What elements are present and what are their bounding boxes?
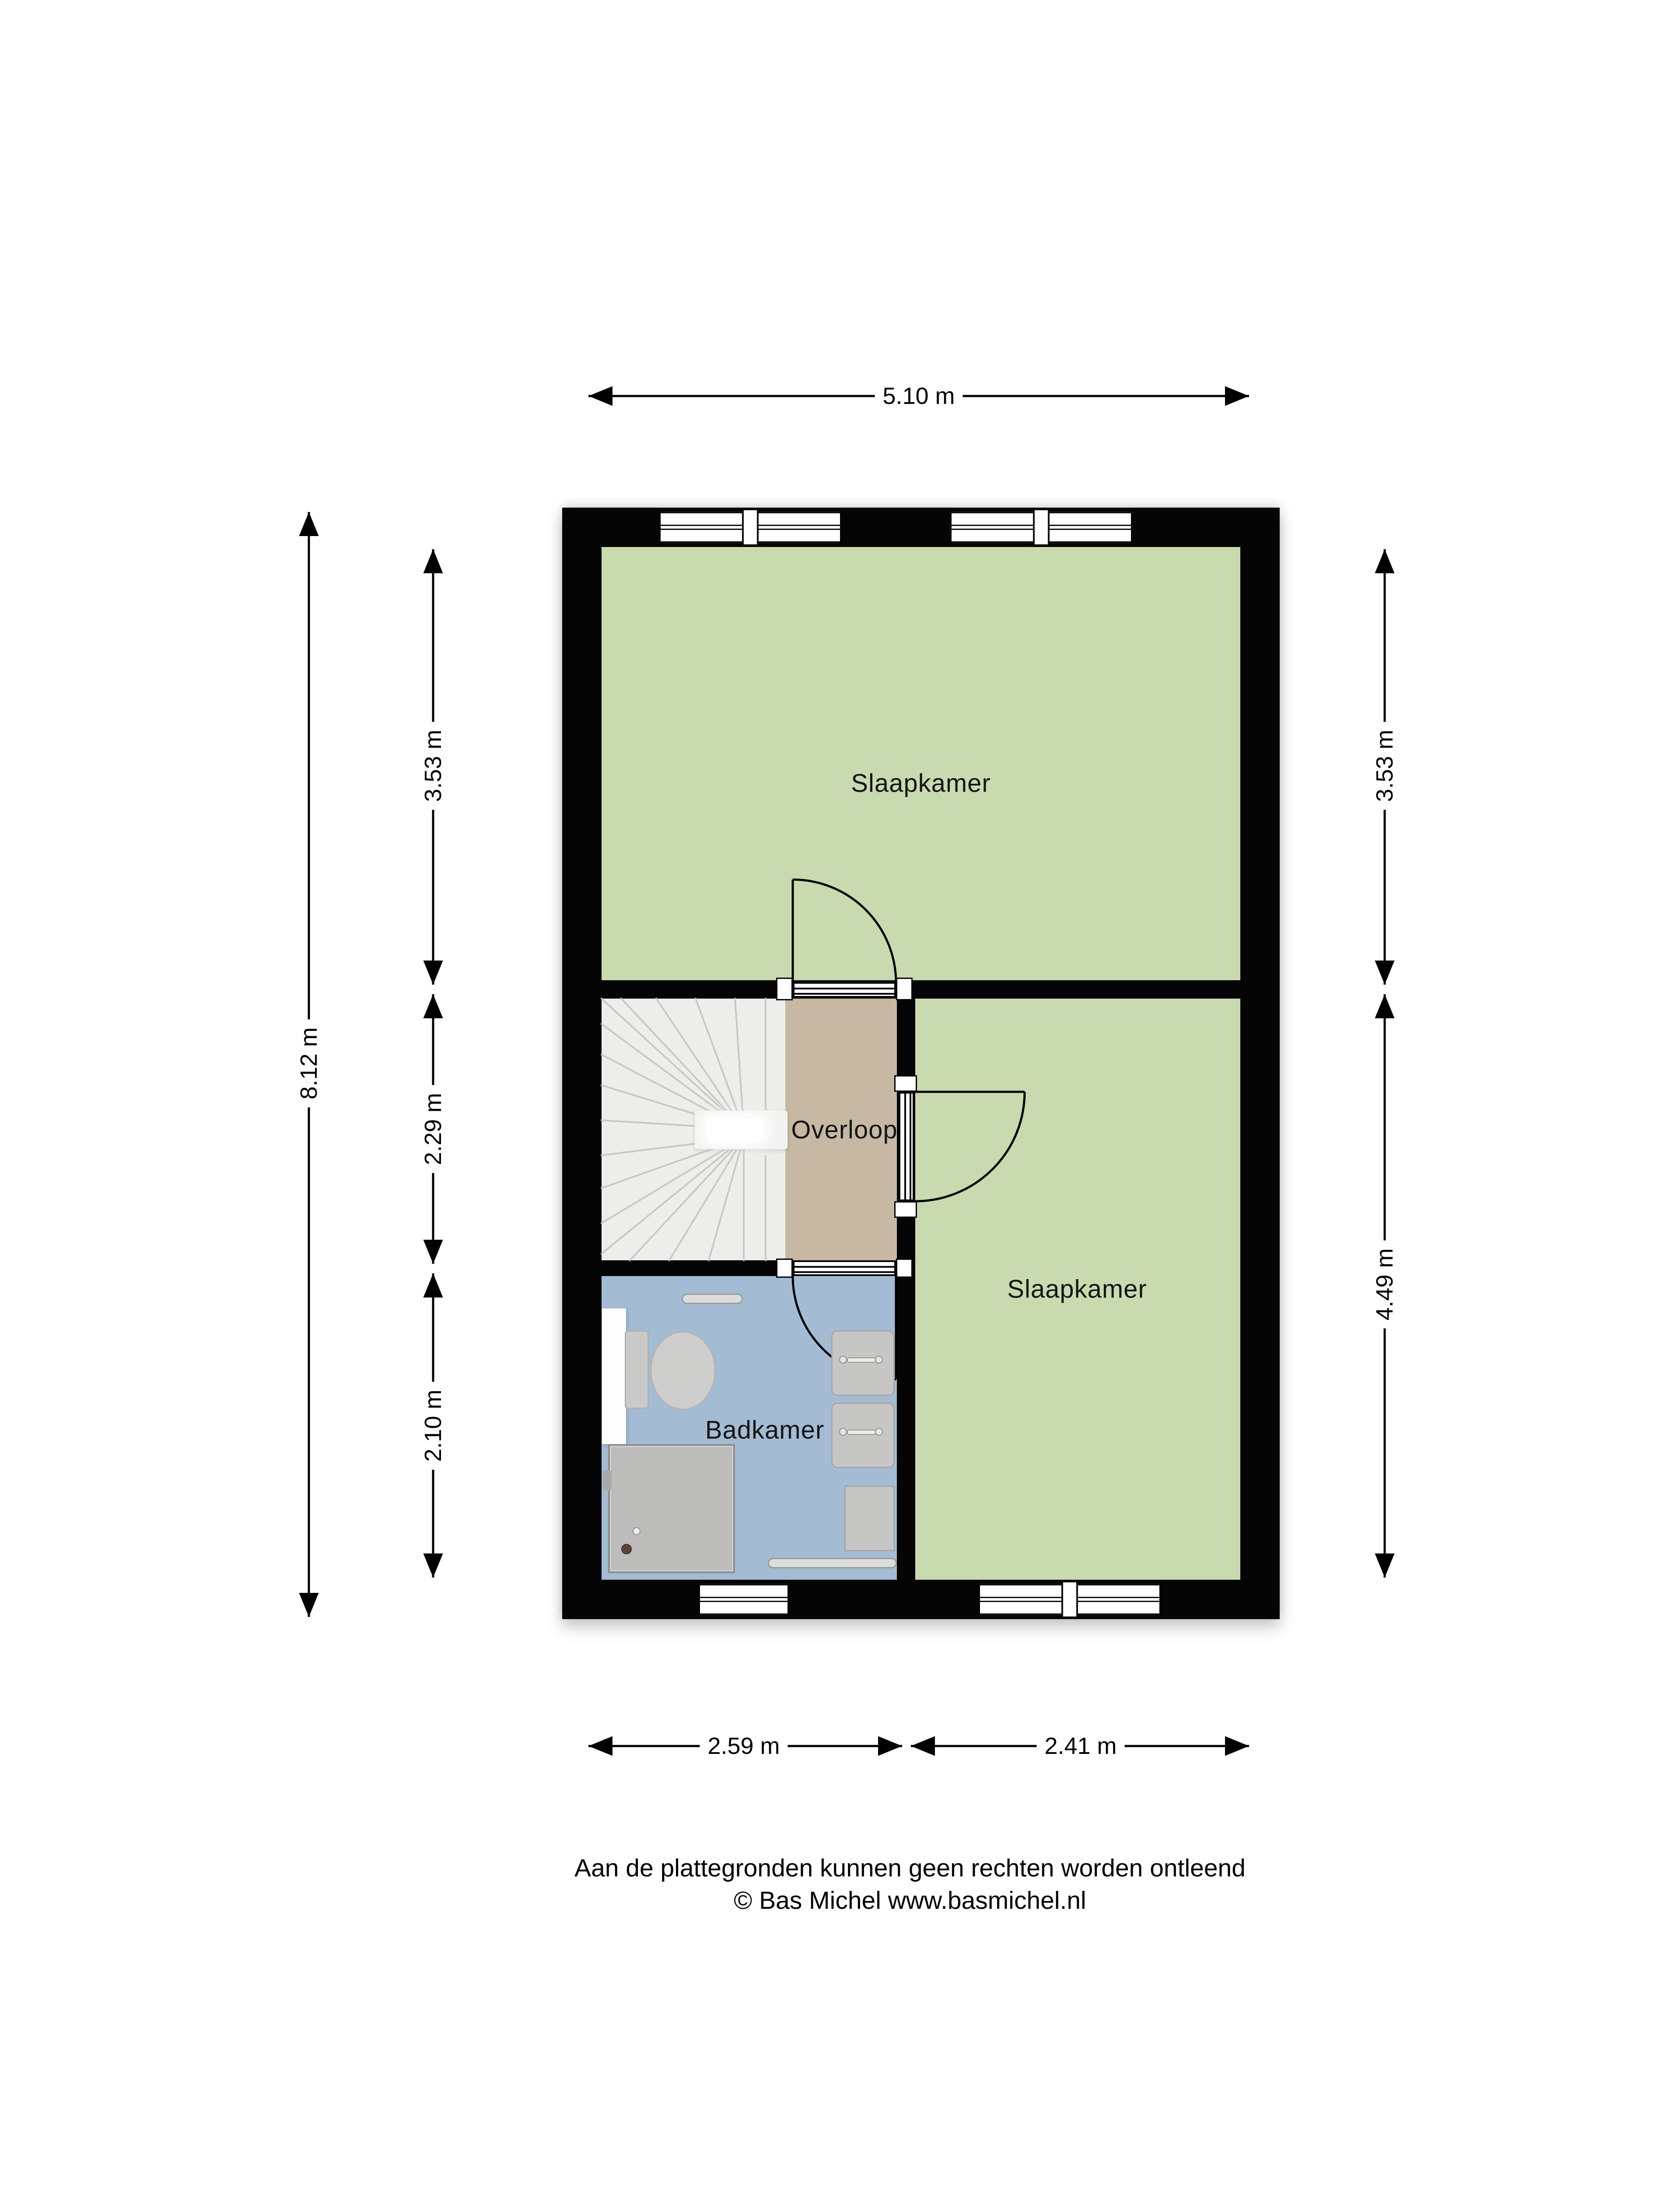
window-divider [1033, 510, 1050, 544]
sink [831, 1330, 895, 1396]
dim-label-left-seg1: 3.53 m [419, 722, 448, 810]
door-jamb [894, 1075, 917, 1092]
footer: Aan de plattegronden kunnen geen rechten… [490, 1852, 1330, 1917]
room-bedroom-top [602, 547, 1240, 980]
wall-vertical-top [897, 999, 915, 1075]
door-jamb [776, 978, 793, 1000]
footer-copyright: © Bas Michel www.basmichel.nl [490, 1884, 1330, 1917]
window-top-right [952, 511, 1131, 543]
faucet-knob [839, 1428, 847, 1436]
door-jamb [894, 1201, 917, 1218]
door-jamb [896, 978, 913, 1000]
faucet [847, 1430, 876, 1435]
toilet-bowl [650, 1331, 716, 1410]
bathroom-counter [602, 1308, 626, 1444]
door-jamb [776, 1259, 793, 1278]
faucet-knob [875, 1428, 883, 1436]
window-divider [742, 510, 759, 544]
dim-label-left-seg2: 2.29 m [419, 1085, 448, 1173]
dim-label-left-seg3: 2.10 m [419, 1382, 448, 1469]
room-label-landing: Overloop [791, 1115, 897, 1145]
radiator [768, 1558, 897, 1568]
shower-fixture [603, 1470, 612, 1490]
room-label-bedroom-right: Slaapkamer [1007, 1275, 1147, 1304]
window-bottom-bedroom [980, 1583, 1159, 1616]
dim-label-left-total: 8.12 m [294, 1019, 323, 1107]
faucet [847, 1357, 876, 1363]
wall-bedroom-top-right [896, 980, 1240, 999]
dim-label-bottom-seg1: 2.59 m [700, 1732, 787, 1760]
shower-control [633, 1527, 640, 1535]
door-jamb [896, 1259, 913, 1278]
door-leaf-bathroom [793, 1260, 896, 1276]
door-leaf-bedroom-right [899, 1092, 914, 1201]
window-top-left [661, 511, 840, 543]
faucet-knob [875, 1356, 883, 1364]
door-leaf-bedroom-top [793, 982, 896, 998]
dim-label-top-width: 5.10 m [875, 382, 962, 410]
wall-bathroom [602, 1260, 793, 1276]
wall-bedroom-top-left [602, 980, 793, 999]
radiator [682, 1294, 743, 1304]
bathroom-cabinet [844, 1486, 895, 1551]
footer-disclaimer: Aan de plattegronden kunnen geen rechten… [490, 1852, 1330, 1884]
dim-label-right-seg1: 3.53 m [1370, 722, 1399, 810]
dim-label-bottom-seg2: 2.41 m [1036, 1732, 1124, 1760]
room-label-bedroom-top: Slaapkamer [851, 769, 990, 798]
toilet-cistern [625, 1330, 649, 1409]
floorplan-page: Slaapkamer Overloop Slaapkamer Badkamer … [0, 0, 1680, 2188]
shower-drain [621, 1544, 632, 1554]
sink [831, 1403, 895, 1468]
stair-landing-marker [707, 1119, 763, 1141]
dim-label-right-seg2: 4.49 m [1370, 1240, 1399, 1328]
window-divider [1061, 1582, 1078, 1616]
window-bottom-bathroom [700, 1583, 787, 1616]
faucet-knob [839, 1356, 847, 1364]
room-label-bathroom: Badkamer [705, 1416, 824, 1445]
